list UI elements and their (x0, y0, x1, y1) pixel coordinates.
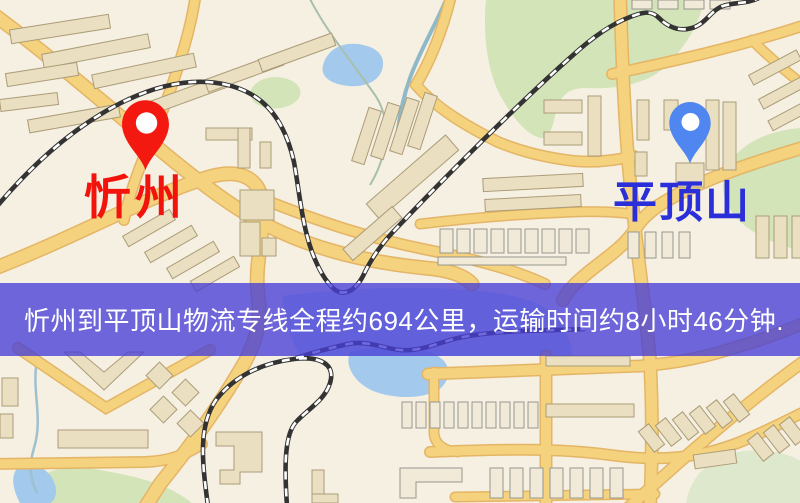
building-block (2, 378, 18, 406)
building-block (645, 232, 656, 258)
building-block (486, 402, 496, 428)
building-block (658, 0, 678, 9)
building-block (528, 402, 538, 428)
building-block (491, 229, 504, 253)
origin-marker-pin[interactable] (119, 99, 172, 172)
pin-body[interactable] (122, 100, 169, 170)
building-block (792, 216, 800, 258)
building-block (550, 468, 563, 498)
building-block (58, 430, 148, 448)
building-block (416, 402, 426, 428)
building-block (238, 128, 250, 168)
building-block (662, 232, 673, 258)
building-block (637, 100, 649, 140)
pin-body[interactable] (669, 102, 710, 164)
building-block (472, 402, 482, 428)
building-block (458, 402, 468, 428)
building-block (240, 190, 274, 220)
building-block (544, 100, 582, 113)
building-block (628, 232, 639, 258)
building-block (570, 468, 583, 498)
building-block (508, 229, 521, 253)
building-block (444, 402, 454, 428)
building-block (588, 96, 601, 156)
route-info-text: 忻州到平顶山物流专线全程约694公里，运输时间约8小时46分钟. (24, 301, 784, 338)
origin-city-label: 忻州 (84, 174, 186, 221)
building-block (632, 0, 652, 9)
building-block (546, 404, 634, 417)
building-block (510, 468, 523, 498)
building-block (610, 468, 623, 498)
building-block (679, 232, 690, 258)
destination-marker-pin[interactable] (667, 100, 713, 166)
building-block (474, 229, 487, 253)
building-block (240, 222, 260, 256)
pin-hole (681, 113, 699, 131)
building-block (635, 152, 647, 176)
building-block (514, 402, 524, 428)
building-block (312, 494, 338, 503)
building-block (500, 402, 510, 428)
building-block (490, 468, 503, 498)
building-block (525, 229, 538, 253)
building-block (542, 229, 555, 253)
building-block (260, 142, 271, 168)
building-block (546, 356, 630, 366)
building-block (590, 468, 603, 498)
building-block (684, 0, 704, 9)
building-block (723, 102, 736, 170)
building-block (440, 229, 453, 253)
building-block (530, 468, 543, 498)
route-info-banner: 忻州到平顶山物流专线全程约694公里，运输时间约8小时46分钟. (0, 283, 800, 356)
building-block (756, 216, 769, 258)
building-block (774, 216, 787, 258)
building-block (544, 132, 582, 145)
map (0, 0, 800, 503)
pin-hole (136, 112, 157, 133)
building-block (438, 257, 566, 265)
building-block (559, 229, 572, 253)
destination-city-label: 平顶山 (613, 181, 751, 225)
building-block (402, 402, 412, 428)
building-block (430, 402, 440, 428)
building-block (457, 229, 470, 253)
building-block (0, 414, 13, 438)
building-block (576, 229, 589, 253)
map-canvas: 忻州 平顶山 忻州到平顶山物流专线全程约694公里，运输时间约8小时46分钟. (0, 0, 800, 503)
building-block (262, 238, 276, 256)
